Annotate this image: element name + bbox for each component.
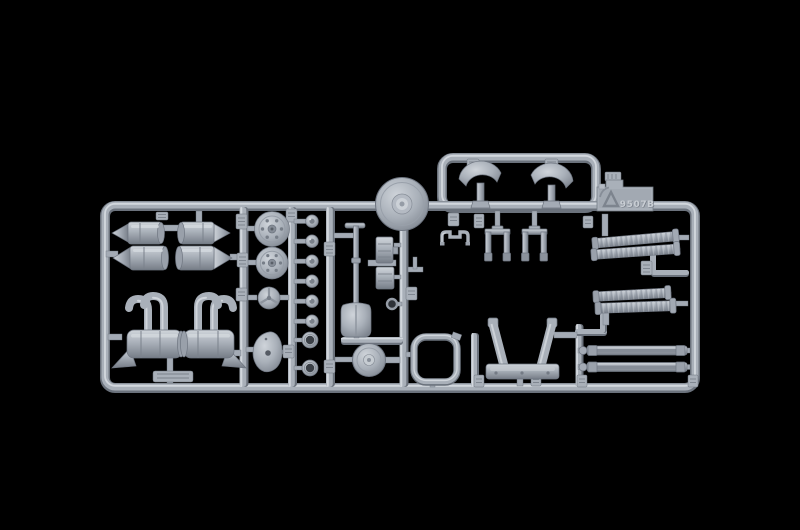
part-number-tab: [237, 253, 248, 267]
sprue-photo: 9507B 9507B: [0, 0, 800, 530]
small-ribbed-disc: [258, 287, 280, 309]
pulley-disc: [376, 178, 429, 231]
small-ring-detail: [387, 299, 397, 309]
part-number-tab: [236, 214, 247, 229]
part-number-tab: [583, 216, 593, 228]
part-number-tab: [641, 261, 652, 275]
vertical-runner-2: [288, 207, 297, 387]
leaf-spring-bar-2: [579, 362, 687, 372]
part-number-tab: [474, 214, 484, 228]
bolted-hub-disc-1: [255, 212, 290, 247]
part-number-tab: [236, 288, 247, 301]
part-number-tab: [474, 375, 484, 387]
part-number-tab: [156, 212, 168, 220]
bolted-hub-disc-2: [256, 247, 288, 279]
part-number-tab: [324, 360, 335, 373]
part-number-tab: [406, 287, 417, 300]
part-number-tab: [577, 375, 587, 387]
part-number-tab: [688, 375, 698, 387]
leaf-spring-bar-1: [579, 346, 687, 356]
part-number-tab: [448, 213, 459, 226]
hub-disc: [353, 344, 386, 377]
mold-code: 9507B: [620, 200, 655, 210]
part-number-tab: [324, 242, 335, 256]
part-number-tab: [283, 345, 294, 358]
muffler-gate-plate: [153, 371, 193, 382]
photo-stage: 9507B 9507B: [0, 0, 800, 530]
vertical-runner-4: [400, 226, 409, 387]
